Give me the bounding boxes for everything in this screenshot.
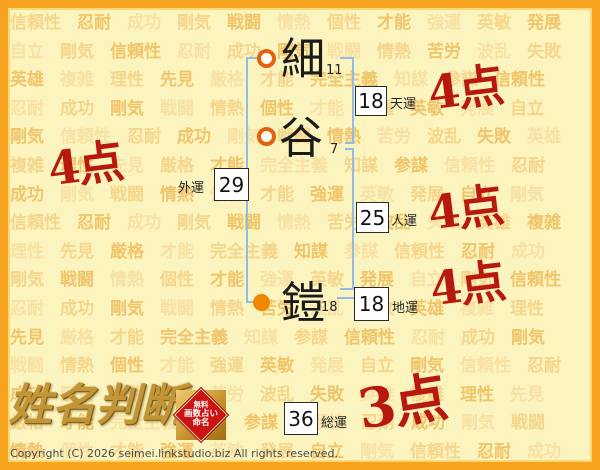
surname-char-2-strokes: 7 — [330, 142, 338, 157]
tenun-score-stamp: 4点 — [425, 62, 504, 117]
given-name-char-marker-icon — [253, 294, 270, 311]
jinun-bracket-top-tick — [345, 148, 354, 150]
jinun-bracket-bottom-tick — [340, 288, 354, 290]
surname-char-2-marker-icon — [257, 127, 276, 146]
tenun-bracket-top-tick — [340, 57, 354, 59]
jinun-score-stamp: 4点 — [425, 182, 504, 237]
site-logo[interactable]: 姓名判断 — [8, 384, 184, 428]
surname-char-1-marker-icon — [257, 49, 276, 68]
seimei-handan-result-page: 信頼性忍耐成功剛気戦闘情熱個性才能強運英敏発展自立剛気信頼性忍耐成功剛気戦闘情熱… — [0, 0, 600, 470]
badge-line-3: 命名 — [192, 419, 209, 429]
tenun-bracket-line — [352, 57, 354, 144]
jinun-bracket-line — [352, 148, 354, 290]
chiun-value-box: 18 — [354, 287, 389, 321]
surname-char-1: 細 — [281, 38, 325, 82]
chiun-connector-line — [337, 297, 354, 299]
copyright-text: Copyright (C) 2026 seimei.linkstudio.biz… — [10, 447, 338, 460]
jinun-label: 人運 — [391, 210, 417, 229]
given-name-char-strokes: 18 — [321, 300, 338, 315]
gaiun-value-box: 29 — [214, 168, 249, 201]
jinun-value-box: 25 — [356, 202, 389, 233]
surname-char-2: 谷 — [279, 117, 323, 161]
given-name-char: 鎧 — [281, 282, 325, 326]
free-naming-badge[interactable]: 無料 画数占い 命名 — [176, 390, 226, 440]
chiun-label: 地運 — [392, 297, 418, 316]
soun-value-box: 36 — [284, 402, 318, 435]
tenun-label: 天運 — [390, 93, 416, 112]
soun-score-stamp: 3点 — [354, 369, 449, 436]
chiun-score-stamp: 4点 — [427, 258, 506, 313]
gaiun-label: 外運 — [178, 177, 204, 196]
gaiun-bracket-top-tick — [246, 57, 257, 59]
soun-label: 総運 — [321, 412, 347, 431]
tenun-bracket-bottom-tick — [345, 142, 354, 144]
surname-char-1-strokes: 11 — [326, 63, 343, 78]
tenun-value-box: 18 — [355, 86, 387, 116]
gaiun-score-stamp: 4点 — [45, 138, 124, 193]
